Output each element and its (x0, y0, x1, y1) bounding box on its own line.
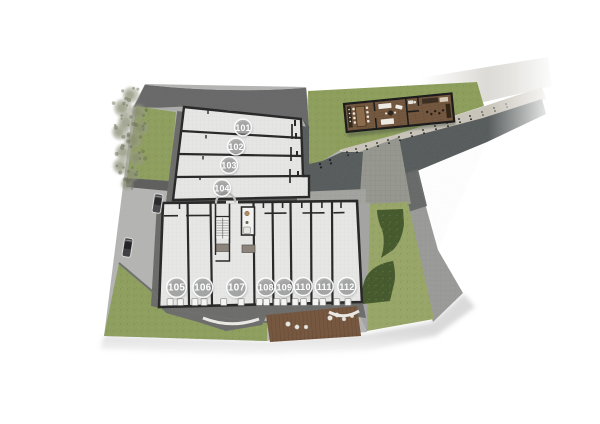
svg-text:103: 103 (221, 161, 236, 171)
svg-text:104: 104 (214, 184, 229, 194)
svg-text:109: 109 (276, 283, 292, 293)
svg-text:110: 110 (295, 282, 310, 292)
svg-text:105: 105 (168, 283, 186, 294)
svg-text:107: 107 (228, 283, 246, 294)
svg-text:112: 112 (339, 282, 354, 292)
svg-text:101: 101 (235, 123, 250, 133)
svg-text:106: 106 (194, 283, 212, 294)
svg-text:111: 111 (317, 282, 332, 292)
svg-text:102: 102 (228, 142, 243, 152)
svg-text:108: 108 (258, 283, 274, 293)
